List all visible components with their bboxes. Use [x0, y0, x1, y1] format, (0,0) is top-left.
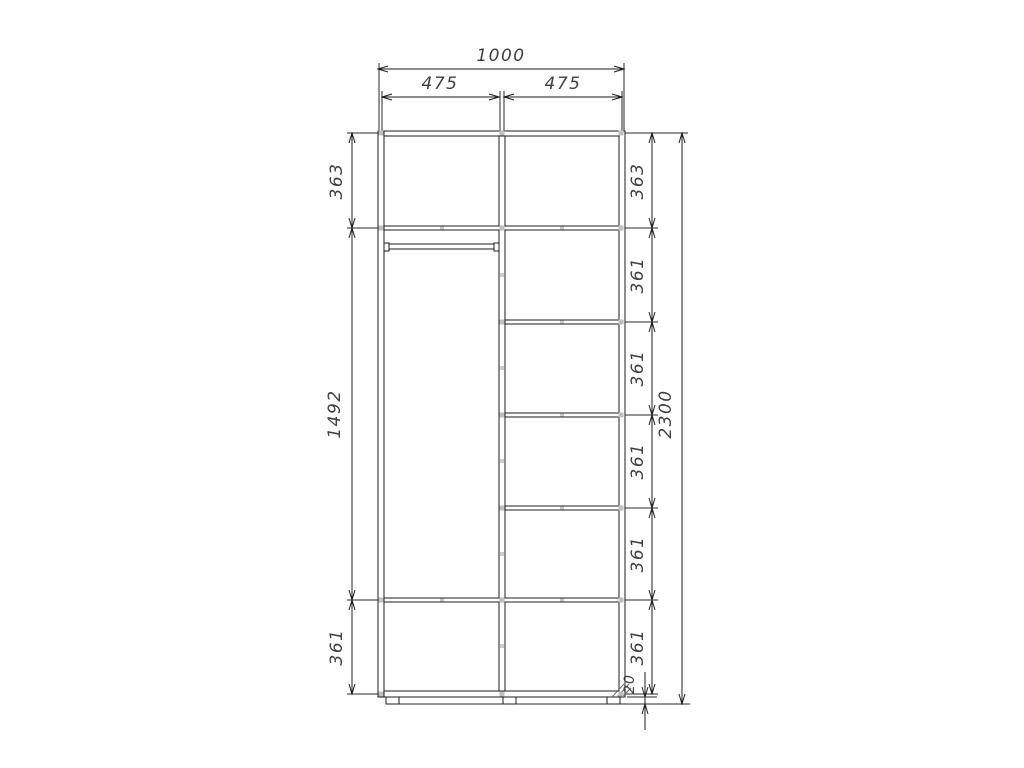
foot-left — [386, 697, 399, 704]
cabinet-left-panel — [378, 131, 384, 697]
hanging-rail — [384, 243, 499, 251]
dim-label-right-cell-2: 361 — [628, 257, 648, 294]
dimension-right-section-width: 475 — [504, 74, 622, 97]
dim-label-left-cell-top: 363 — [327, 163, 347, 200]
hanging-rail-bracket-right — [494, 243, 499, 251]
dimension-right-cell-4: 361 — [628, 415, 652, 508]
dim-label-overall-width: 1000 — [476, 46, 525, 66]
dimension-left-section-width: 475 — [382, 74, 499, 97]
dim-label-right-cell-5: 361 — [628, 536, 648, 573]
dim-label-left-cell-middle: 1492 — [325, 389, 345, 438]
dim-label-right-section-width: 475 — [545, 74, 582, 94]
dimension-overall-width: 1000 — [378, 46, 624, 69]
dimension-left-cell-top: 363 — [327, 133, 352, 228]
dim-label-base-height: 20 — [622, 674, 638, 694]
foot-center — [503, 697, 516, 704]
dim-label-right-cell-1: 363 — [628, 163, 648, 200]
dimension-right-cell-5: 361 — [628, 508, 652, 600]
dim-label-right-cell-4: 361 — [628, 443, 648, 480]
hanging-rail-bar — [389, 244, 495, 249]
dim-label-right-cell-3: 361 — [628, 350, 648, 387]
dimension-base-height: 20 — [622, 672, 645, 730]
dim-label-overall-height: 2300 — [656, 389, 676, 438]
dim-label-left-cell-bottom: 361 — [327, 629, 347, 666]
drawing-canvas: 1000 475 475 363 1492 361 363 — [0, 0, 1024, 768]
dimension-right-cell-3: 361 — [628, 322, 652, 415]
foot-right — [607, 697, 620, 704]
dimension-left-cell-bottom: 361 — [327, 600, 352, 694]
dimension-left-cell-middle: 1492 — [325, 228, 352, 600]
dimension-right-cell-2: 361 — [628, 228, 652, 322]
dim-label-right-cell-6: 361 — [628, 629, 648, 666]
dimension-overall-height: 2300 — [656, 133, 682, 704]
wardrobe-technical-drawing: 1000 475 475 363 1492 361 363 — [0, 0, 1024, 768]
hanging-rail-bracket-left — [384, 243, 389, 251]
dim-label-left-section-width: 475 — [422, 74, 459, 94]
dimension-right-cell-1: 363 — [628, 133, 652, 228]
